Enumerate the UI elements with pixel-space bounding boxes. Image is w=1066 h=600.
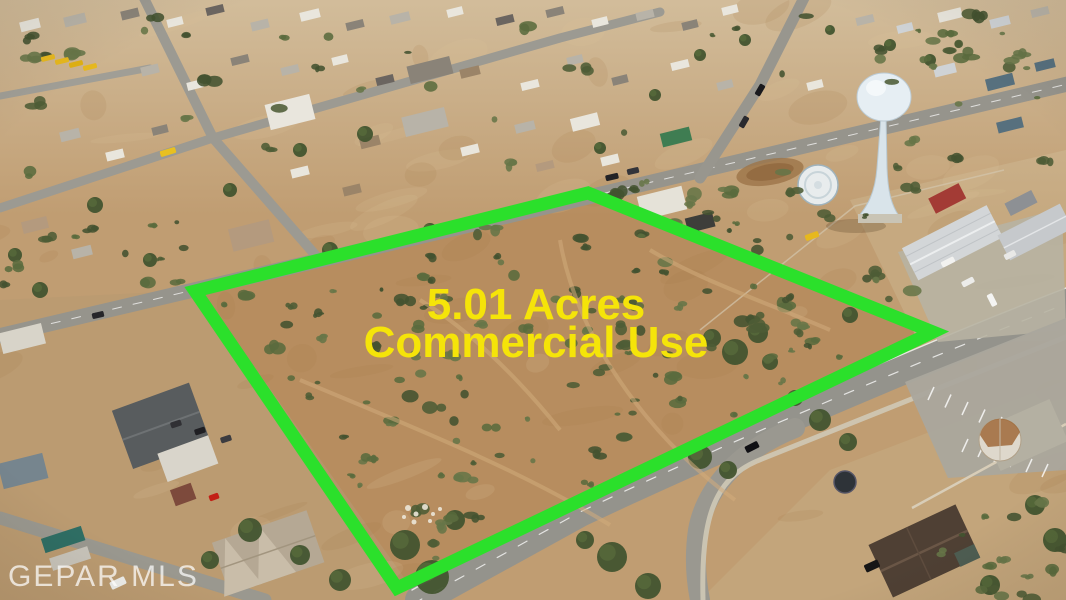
mls-watermark: GEPAR MLS — [8, 560, 199, 593]
aerial-photo-canvas: 5.01 Acres Commercial Use GEPAR MLS — [0, 0, 1066, 600]
aerial-listing-photo: 5.01 Acres Commercial Use GEPAR MLS — [0, 0, 1066, 600]
land-use-label: Commercial Use — [364, 318, 709, 367]
